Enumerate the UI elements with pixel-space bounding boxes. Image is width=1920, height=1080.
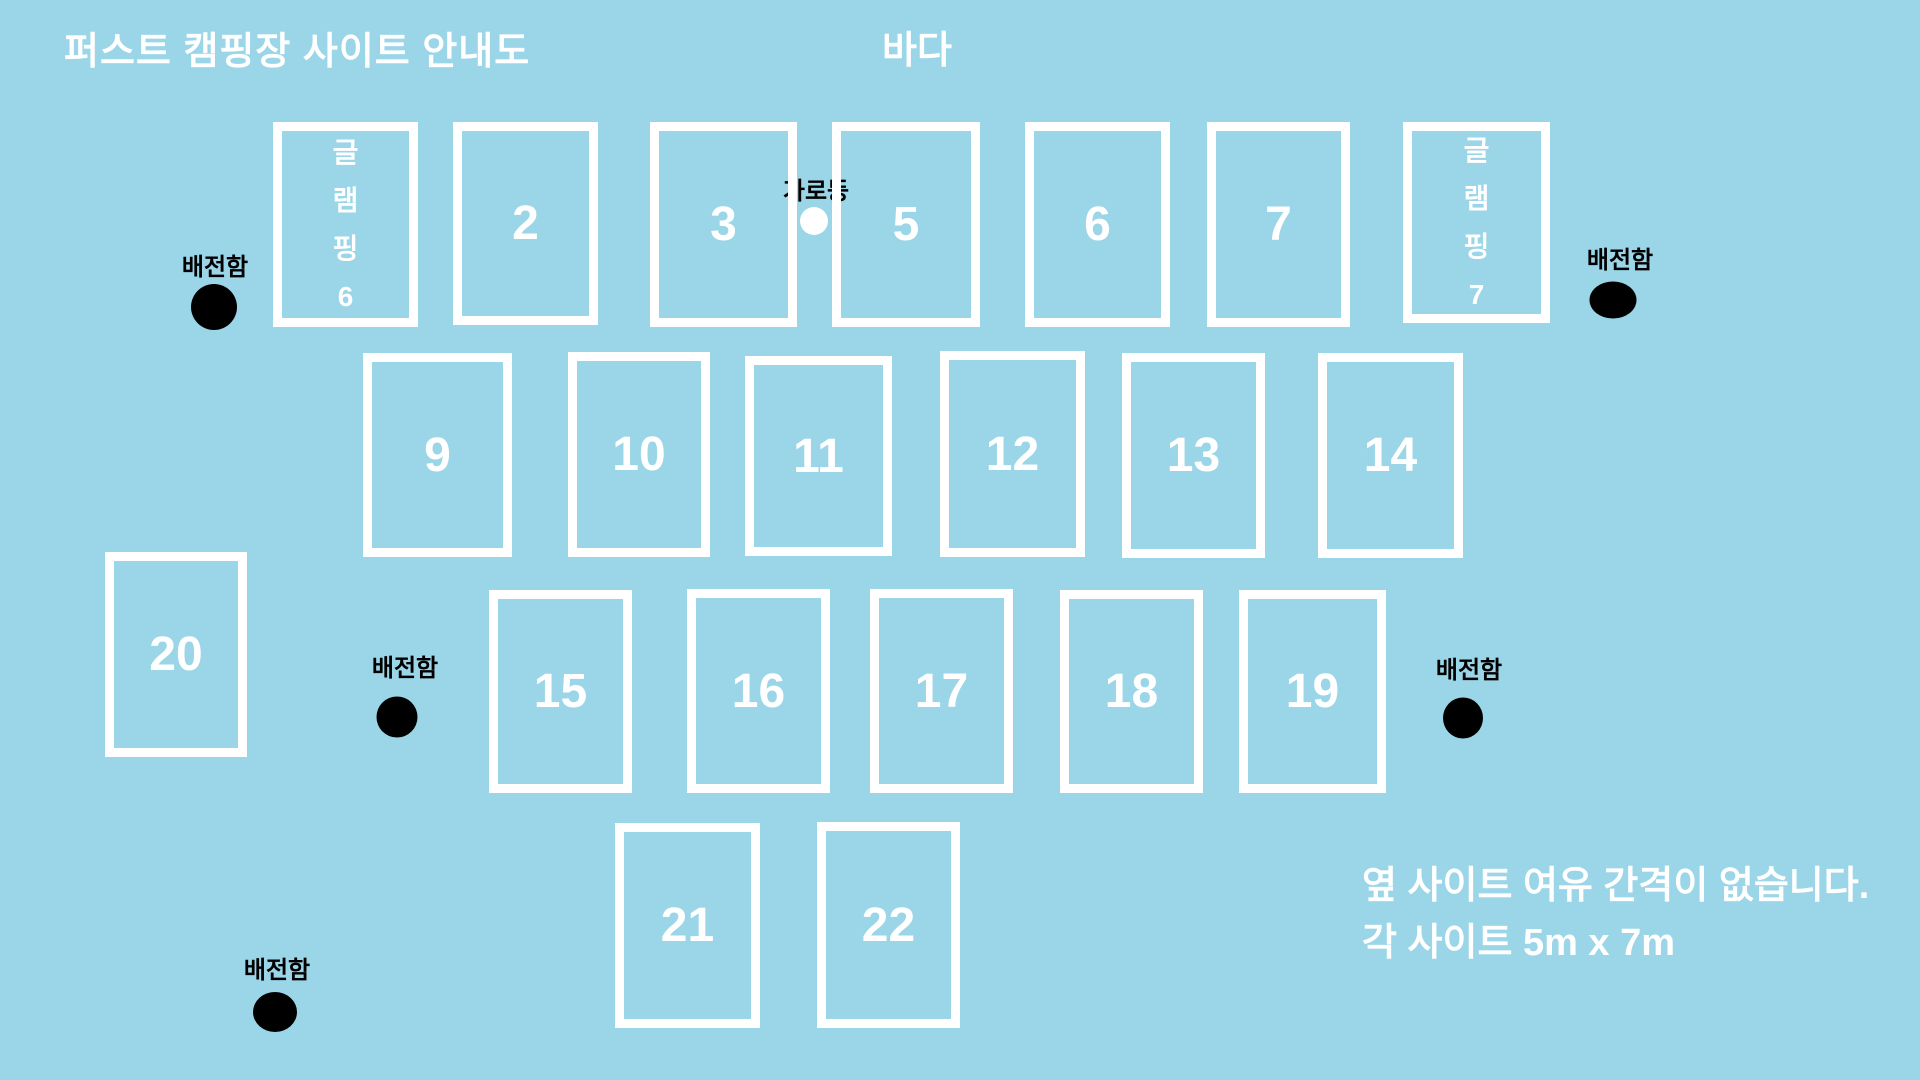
notes-line-1: 옆 사이트 여유 간격이 없습니다. xyxy=(1362,858,1869,915)
notes-text: 옆 사이트 여유 간격이 없습니다. 각 사이트 5m x 7m xyxy=(1362,858,1869,972)
site-label: 12 xyxy=(986,427,1039,482)
site-label: 7 xyxy=(1265,197,1292,252)
site-label: 20 xyxy=(149,627,202,682)
site-box-glamping-6: 글램핑6 xyxy=(273,122,418,327)
site-box-14: 14 xyxy=(1318,353,1463,558)
site-box-22: 22 xyxy=(817,822,960,1028)
power-box-label: 배전함 xyxy=(372,648,438,683)
site-box-11: 11 xyxy=(745,356,892,556)
site-label: 21 xyxy=(661,898,714,953)
power-box-dot xyxy=(191,284,237,330)
site-box-13: 13 xyxy=(1122,353,1265,558)
site-box-7: 7 xyxy=(1207,122,1350,327)
site-label-char: 글 xyxy=(333,129,359,177)
site-label: 14 xyxy=(1364,428,1417,483)
notes-line-2: 각 사이트 5m x 7m xyxy=(1362,915,1869,972)
site-box-19: 19 xyxy=(1239,590,1386,793)
site-label-vertical: 글램핑6 xyxy=(333,129,359,321)
site-label: 3 xyxy=(710,197,737,252)
power-box-dot xyxy=(1443,698,1483,739)
site-box-15: 15 xyxy=(489,590,632,793)
site-box-glamping-7: 글램핑7 xyxy=(1403,122,1550,323)
site-label-char: 램 xyxy=(333,177,359,225)
site-label: 5 xyxy=(893,197,920,252)
site-box-10: 10 xyxy=(568,352,710,557)
site-label-char: 6 xyxy=(338,273,354,321)
power-box-label: 배전함 xyxy=(182,247,248,282)
site-box-16: 16 xyxy=(687,589,830,793)
site-label: 11 xyxy=(793,429,844,484)
site-box-12: 12 xyxy=(940,351,1085,557)
power-box-dot xyxy=(1590,282,1637,319)
site-box-18: 18 xyxy=(1060,590,1203,793)
sea-label: 바다 xyxy=(882,19,952,74)
site-box-20: 20 xyxy=(105,552,247,757)
site-box-2: 2 xyxy=(453,122,598,325)
site-box-9: 9 xyxy=(363,353,512,557)
site-box-5: 5 xyxy=(832,122,980,327)
site-label: 19 xyxy=(1286,664,1339,719)
power-box-label: 배전함 xyxy=(1436,650,1502,685)
site-label: 13 xyxy=(1167,428,1220,483)
power-box-label: 배전함 xyxy=(244,950,310,985)
site-label: 9 xyxy=(424,428,451,483)
street-light-dot xyxy=(800,207,828,235)
campground-site-map: 퍼스트 캠핑장 사이트 안내도 바다 가로등 글램핑623567글램핑79101… xyxy=(0,0,1920,1080)
power-box-dot xyxy=(377,697,418,738)
site-label: 16 xyxy=(732,664,785,719)
site-label: 2 xyxy=(512,196,539,251)
site-box-6: 6 xyxy=(1025,122,1170,327)
page-title: 퍼스트 캠핑장 사이트 안내도 xyxy=(64,20,530,75)
site-box-17: 17 xyxy=(870,589,1013,793)
site-label-char: 7 xyxy=(1469,271,1485,319)
power-box-dot xyxy=(253,992,297,1032)
site-label: 18 xyxy=(1105,664,1158,719)
site-label: 6 xyxy=(1084,197,1111,252)
power-box-label: 배전함 xyxy=(1587,240,1653,275)
site-box-3: 3 xyxy=(650,122,797,327)
site-label-char: 글 xyxy=(1464,127,1490,175)
site-label: 15 xyxy=(534,664,587,719)
site-label-char: 램 xyxy=(1464,175,1490,223)
site-box-21: 21 xyxy=(615,823,760,1028)
site-label-vertical: 글램핑7 xyxy=(1464,127,1490,319)
site-label-char: 핑 xyxy=(333,225,359,273)
site-label-char: 핑 xyxy=(1464,223,1490,271)
site-label: 17 xyxy=(915,664,968,719)
site-label: 22 xyxy=(862,898,915,953)
site-label: 10 xyxy=(612,427,665,482)
